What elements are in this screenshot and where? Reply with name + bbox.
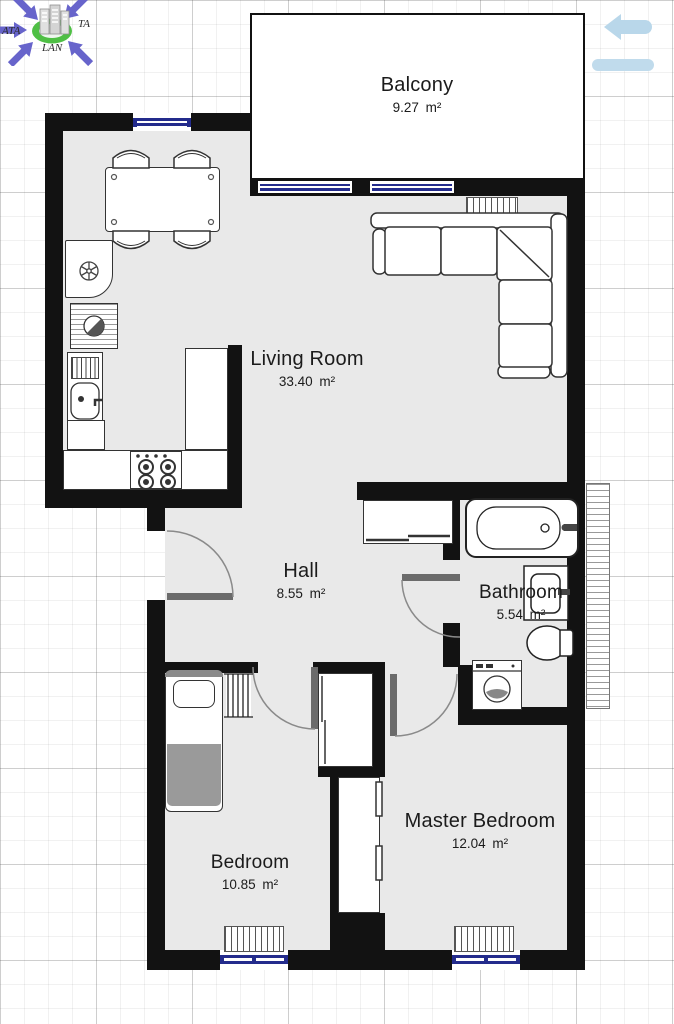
wall-left-lower-a bbox=[147, 508, 165, 531]
wall-kitchen-bottom bbox=[45, 489, 242, 508]
bedroom-label: Bedroom 10.85 m² bbox=[150, 852, 350, 892]
wall-wardrobe-bottom bbox=[330, 913, 385, 952]
wall-right bbox=[567, 178, 585, 970]
logo-ellipse-inner bbox=[39, 24, 65, 38]
logo-text-bottom: LAN bbox=[41, 42, 63, 54]
living-room-radiator bbox=[466, 197, 518, 214]
window-glass bbox=[135, 123, 189, 126]
hall-closet bbox=[363, 500, 453, 544]
bathroom-label: Bathroom 5.54 m² bbox=[431, 582, 611, 622]
back-arrow-icon[interactable] bbox=[604, 14, 652, 40]
stove bbox=[130, 451, 182, 489]
bedroom-door-leaf bbox=[311, 667, 318, 729]
wall-bathroom-stub bbox=[458, 665, 473, 710]
master-bedroom-door-leaf bbox=[390, 674, 397, 736]
dining-table bbox=[105, 167, 220, 232]
hall-label: Hall 8.55 m² bbox=[201, 560, 401, 601]
window-frame-tick bbox=[220, 955, 224, 964]
window-glass bbox=[260, 188, 350, 191]
window-frame-tick bbox=[133, 118, 137, 127]
logo-buildings-icon bbox=[40, 5, 69, 34]
balcony-area: 9.27 m² bbox=[317, 100, 517, 115]
hall-name: Hall bbox=[201, 560, 401, 583]
bedroom-name: Bedroom bbox=[150, 852, 350, 874]
logo-text-left: ATA bbox=[1, 25, 21, 37]
living-room-floor bbox=[250, 196, 567, 490]
wall-wardrobe-divider bbox=[318, 767, 385, 777]
balcony-sliding-door-right bbox=[370, 181, 454, 193]
arrow-tail bbox=[619, 20, 652, 34]
logo-arrows-icon bbox=[0, 0, 96, 66]
kitchen-window bbox=[133, 113, 191, 131]
master-bedroom-label: Master Bedroom 12.04 m² bbox=[380, 810, 580, 851]
dishwasher bbox=[70, 303, 118, 349]
bedroom-radiator bbox=[224, 926, 284, 952]
balcony-name: Balcony bbox=[317, 74, 517, 97]
master-bedroom-name: Master Bedroom bbox=[380, 810, 580, 833]
wardrobe-upper bbox=[318, 673, 373, 767]
master-bedroom-area: 12.04 m² bbox=[380, 836, 580, 851]
balcony-sliding-door-left bbox=[258, 181, 352, 193]
window-frame-tick bbox=[284, 955, 288, 964]
window-glass bbox=[372, 184, 452, 187]
fridge bbox=[65, 240, 113, 298]
bed-headboard bbox=[165, 670, 223, 677]
logo-text-right: TA bbox=[78, 18, 90, 30]
window-glass bbox=[135, 118, 189, 121]
living-room-area: 33.40 m² bbox=[207, 374, 407, 389]
bedroom-window bbox=[220, 950, 288, 970]
window-frame-tick bbox=[452, 955, 456, 964]
company-logo: ATA TA LAN bbox=[0, 0, 116, 66]
wall-hall-bathroom-top bbox=[357, 482, 585, 500]
window-frame-tick bbox=[516, 955, 520, 964]
hall-area: 8.55 m² bbox=[201, 586, 401, 601]
wall-bathroom-left-b bbox=[443, 623, 460, 667]
balcony-label: Balcony 9.27 m² bbox=[317, 74, 517, 115]
living-room-name: Living Room bbox=[207, 348, 407, 371]
kitchen-counter bbox=[67, 420, 105, 450]
window-glass bbox=[372, 188, 452, 191]
bed-pillow bbox=[173, 680, 215, 708]
bed-blanket bbox=[167, 744, 221, 806]
logo-green-ellipse bbox=[32, 19, 72, 44]
living-room-label: Living Room 33.40 m² bbox=[207, 348, 407, 389]
master-bedroom-radiator bbox=[454, 926, 514, 952]
sink-drainer bbox=[71, 357, 99, 379]
window-frame-tick bbox=[252, 955, 256, 964]
wall-left-lower-b bbox=[147, 600, 165, 970]
master-bedroom-window bbox=[452, 950, 520, 970]
washing-machine bbox=[472, 660, 522, 710]
wardrobe-lower bbox=[338, 777, 380, 913]
floor-plan-canvas: Balcony 9.27 m² Living Room 33.40 m² Hal… bbox=[0, 0, 674, 1024]
wall-wardrobe-right bbox=[373, 662, 385, 777]
bathroom-name: Bathroom bbox=[431, 582, 611, 604]
wall-left-upper bbox=[45, 131, 63, 508]
bathroom-door-leaf bbox=[402, 574, 460, 581]
window-frame-tick bbox=[187, 118, 191, 127]
window-glass bbox=[260, 184, 350, 187]
bedroom-area: 10.85 m² bbox=[150, 877, 350, 892]
window-frame-tick bbox=[484, 955, 488, 964]
bathroom-area: 5.54 m² bbox=[431, 607, 611, 622]
scroll-bar-fragment bbox=[592, 59, 654, 71]
